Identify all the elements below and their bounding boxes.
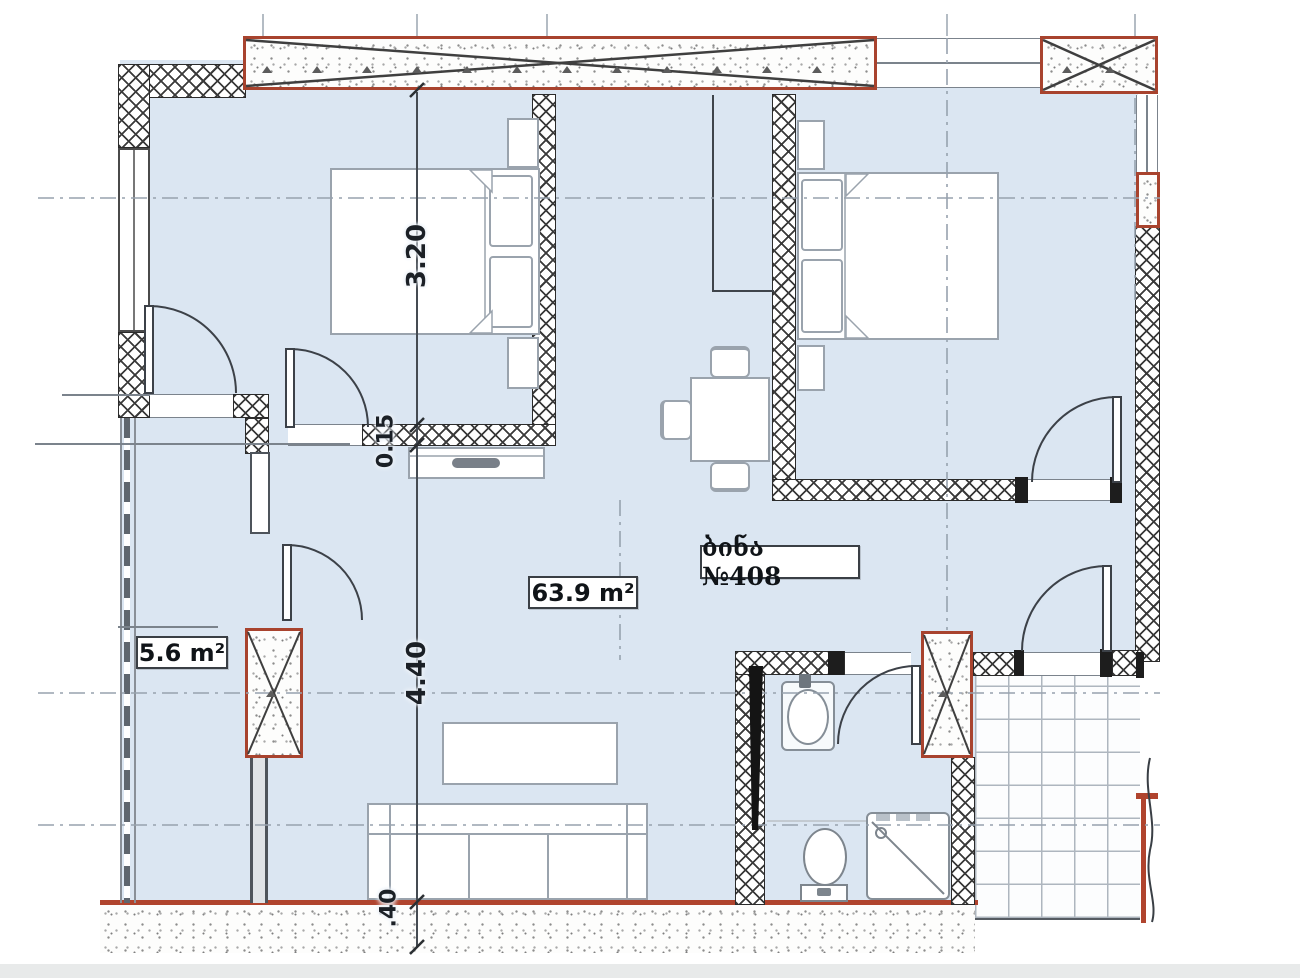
dimension-exterior-wall: .40 [377, 889, 402, 928]
dimension-bedroom-depth: 3.20 [402, 224, 432, 288]
grid-stub-lines [263, 14, 1135, 36]
bed-fold-marks [470, 170, 868, 338]
apartment-number-label: ბინა №408 [700, 545, 860, 579]
vent-shaft-wedge [749, 666, 763, 830]
small-room-area-text: 5.6 m² [139, 639, 225, 667]
living-area-text: 63.9 m² [531, 579, 634, 607]
floorplan-canvas: 3.20 0.15 4.40 .40 63.9 m² ბინა №408 5.6… [0, 0, 1300, 978]
doors [145, 306, 1121, 744]
door-bathroom [838, 666, 920, 744]
dimension-line-vertical [410, 83, 424, 954]
detail-overlay [0, 0, 1300, 978]
dimension-living-depth: 4.40 [402, 641, 432, 705]
living-area-label: 63.9 m² [528, 576, 638, 609]
apartment-number-text: ბინა №408 [702, 533, 858, 591]
door-bedroom2 [1032, 397, 1121, 482]
door-entry-left [145, 306, 236, 393]
centerlines [38, 38, 1160, 825]
door-small-room [283, 545, 362, 620]
door-balcony [1022, 566, 1111, 651]
dimension-interior-wall: 0.15 [374, 414, 399, 468]
shower-detail [872, 822, 944, 894]
structural-x-braces [246, 40, 1155, 754]
small-room-area-label: 5.6 m² [136, 636, 228, 669]
insulation-marks [262, 66, 1115, 697]
door-bedroom1 [286, 349, 368, 427]
break-line-squiggle [1148, 758, 1154, 922]
